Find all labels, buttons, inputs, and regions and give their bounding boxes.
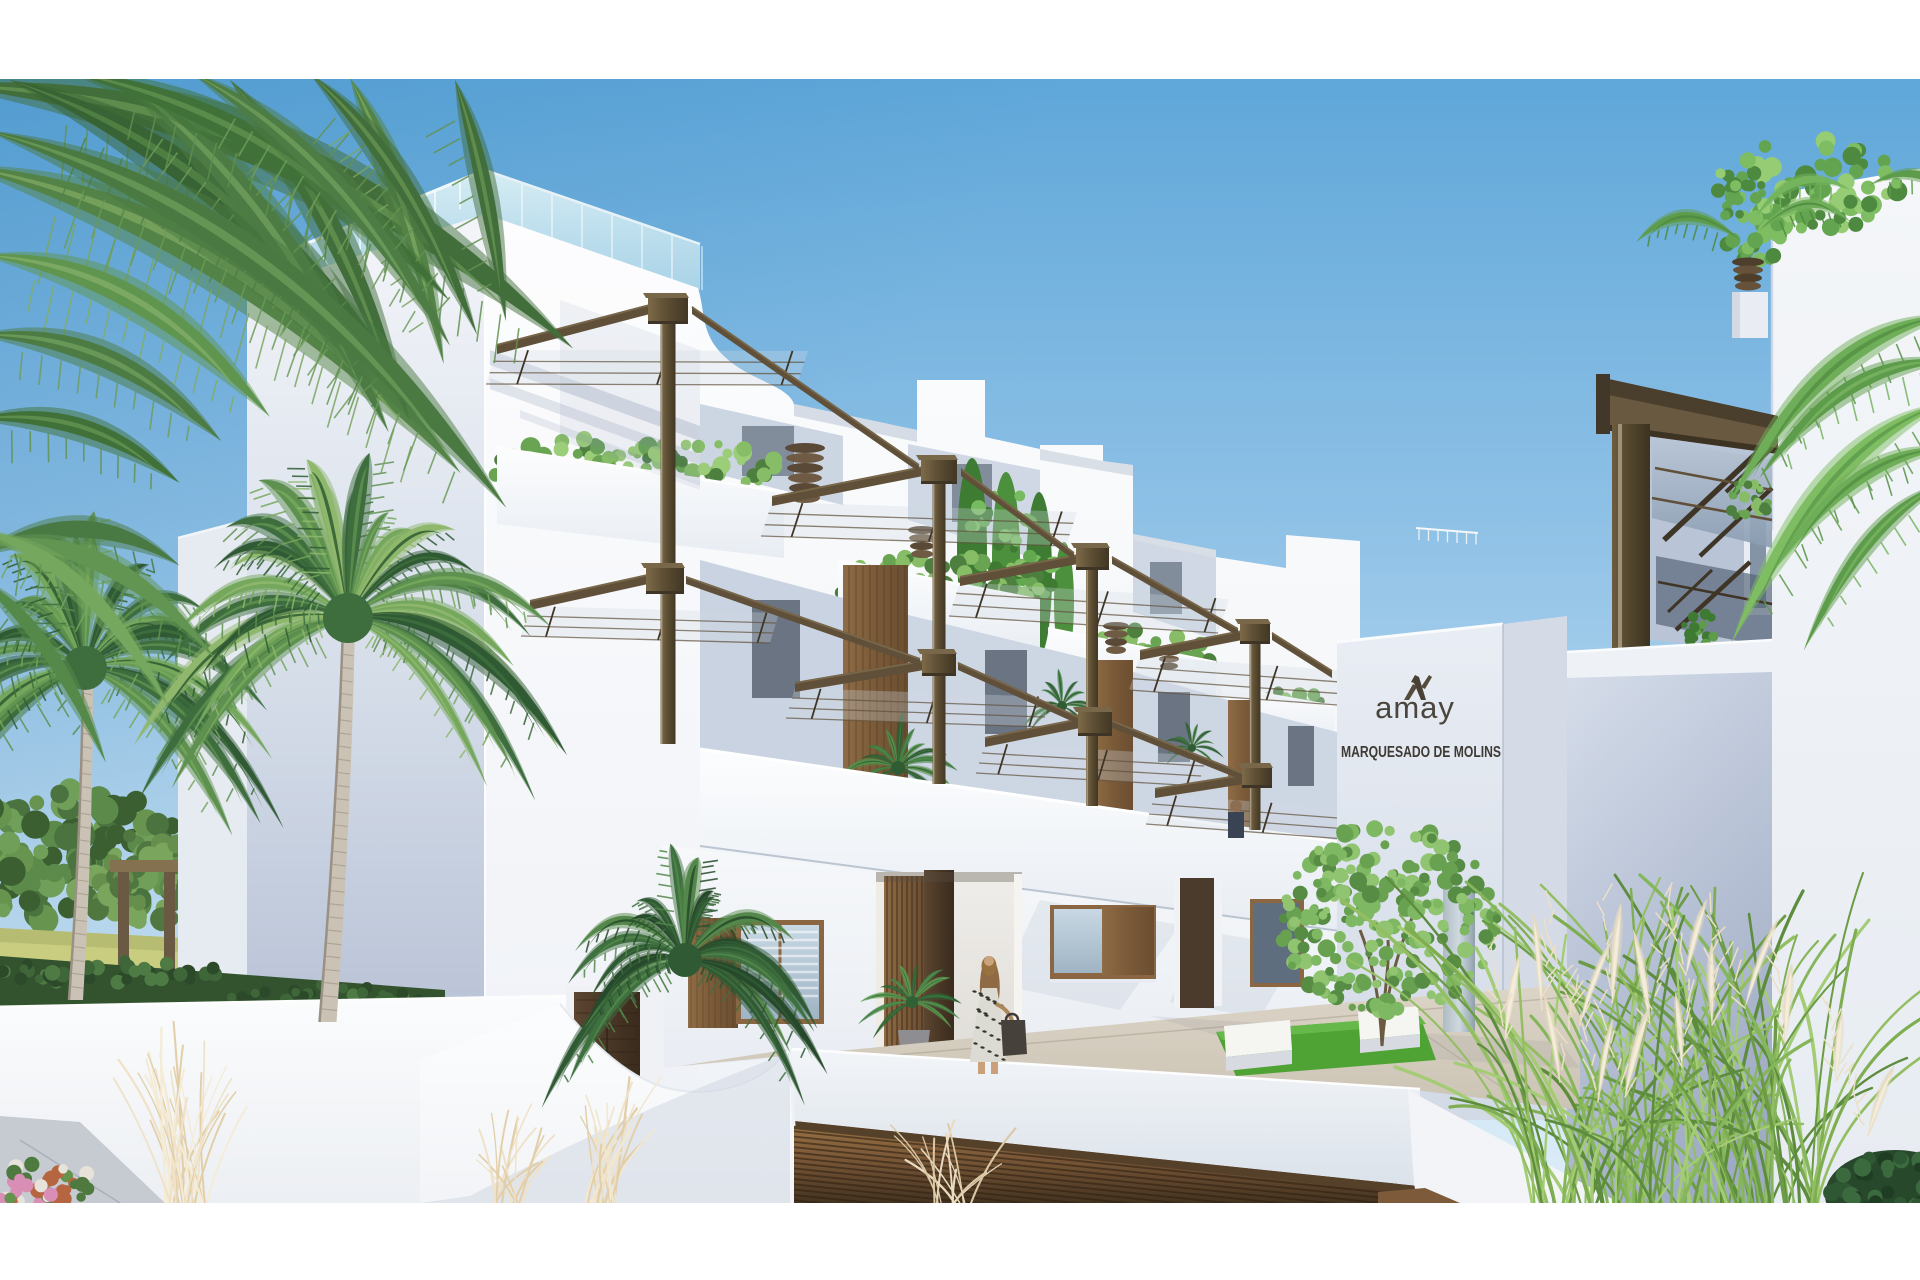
svg-text:amay: amay: [1375, 690, 1455, 725]
svg-text:MARQUESADO DE MOLINS: MARQUESADO DE MOLINS: [1341, 744, 1501, 761]
